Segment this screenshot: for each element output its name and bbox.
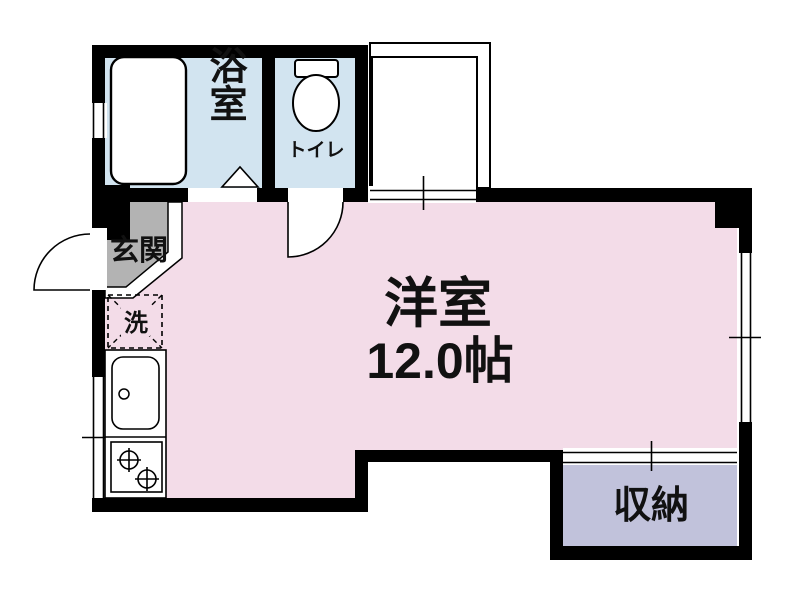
sink-drain-icon <box>119 389 129 399</box>
top-window <box>368 186 476 203</box>
main-room-size-label: 12.0帖 <box>366 333 513 389</box>
wall-bottom-left <box>92 498 368 512</box>
toilet-label: トイレ <box>287 140 344 161</box>
toilet-icon <box>293 60 339 131</box>
main-room-label: 洋室 <box>384 274 492 334</box>
bathroom-label: 浴室 <box>203 46 247 122</box>
wall-corner-notch <box>715 202 739 228</box>
kitchen-counter <box>105 350 166 498</box>
floor-plan: 浴室 トイレ 玄関 洗 洋室 12.0帖 収納 <box>0 0 800 603</box>
laundry-label: 洗 <box>124 310 148 337</box>
wall-storage-left <box>550 450 563 560</box>
bathroom-door-opening <box>188 188 257 202</box>
wall-mid-bottom <box>355 450 563 462</box>
entrance-label: 玄関 <box>110 233 168 267</box>
entrance-door-opening <box>90 228 107 290</box>
floor-plan-canvas: 浴室 トイレ 玄関 洗 洋室 12.0帖 収納 <box>0 0 800 603</box>
storage-label: 収納 <box>613 485 689 527</box>
bathtub-icon <box>111 57 186 184</box>
wall-top-right <box>475 188 752 202</box>
wall-toilet-right <box>355 45 368 202</box>
wall-storage-bottom <box>550 546 752 560</box>
toilet-door-opening <box>288 188 343 202</box>
bathroom-window <box>90 103 107 138</box>
wall-bath-toilet-divider <box>262 58 275 188</box>
